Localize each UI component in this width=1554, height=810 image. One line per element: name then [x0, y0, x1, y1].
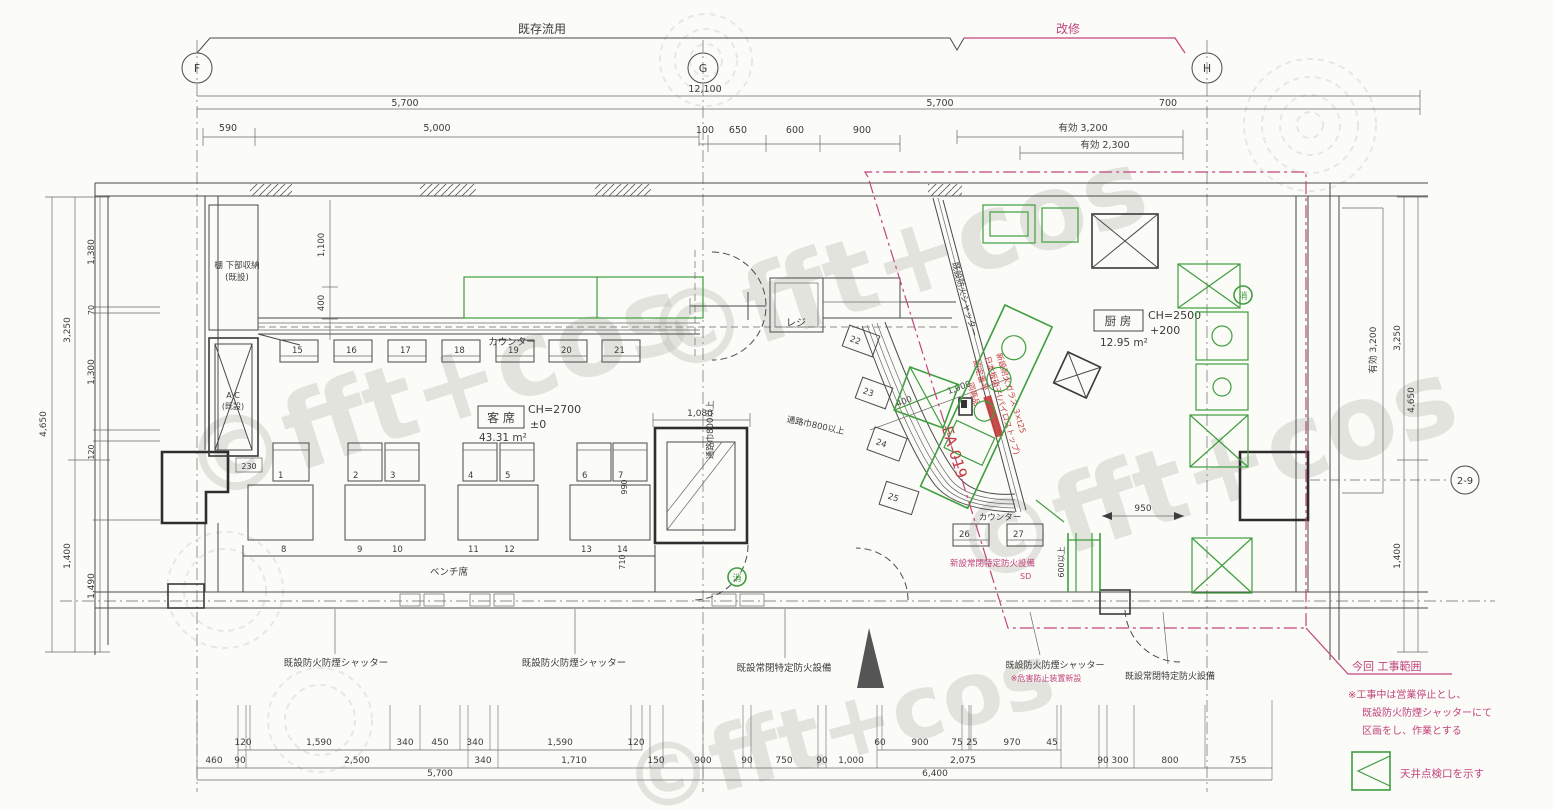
- stool-18: 18: [454, 346, 465, 356]
- dimb-m-0: 460: [205, 756, 222, 766]
- dim-950: 950: [1134, 504, 1151, 514]
- kitchen-name: 厨 房: [1105, 314, 1132, 328]
- dimb-ur-4: 970: [1003, 738, 1020, 748]
- seat-23: 23: [861, 386, 875, 399]
- ac-label-sub: (既設): [222, 401, 244, 411]
- scope-note-3: 区画をし、作業とする: [1362, 724, 1462, 737]
- dim-990: 990: [620, 479, 629, 494]
- dim-1100: 1,100: [317, 233, 327, 257]
- ac-label: A C: [226, 391, 240, 400]
- scope-title: 今回 工事範囲: [1352, 659, 1422, 673]
- watermark-layer: ©fft+cos ©fft+cos ©fft+cos ©fft+cos: [167, 14, 1471, 810]
- fire-extinguisher-mark-2: 消: [1238, 290, 1247, 302]
- aisle-width-note-2: 通路巾800以上: [786, 414, 846, 437]
- ceiling-access-legend: 天井点検口を示す: [1352, 752, 1484, 790]
- dimb-m-3: 340: [474, 756, 491, 766]
- shelf-label: 棚 下部収納: [214, 260, 259, 271]
- register-label: レジ: [786, 318, 806, 329]
- seat-27: 27: [1013, 530, 1024, 540]
- dimb-ul-4: 340: [466, 738, 483, 748]
- shutter-label-2: 既設防火防煙シャッター: [522, 657, 627, 669]
- dim-yuko-3200-right: 有効 3,200: [1367, 326, 1379, 373]
- dim-yuko-3200: 有効 3,200: [1058, 122, 1107, 134]
- dim-590: 590: [219, 123, 237, 134]
- dim-3250-left: 3,250: [63, 317, 73, 343]
- seating-level: ±0: [530, 418, 546, 431]
- seat-13: 13: [581, 545, 592, 555]
- dimb-ur-3: 25: [966, 738, 977, 748]
- dim-5700-gh: 5,700: [926, 98, 953, 109]
- seat-12: 12: [504, 545, 515, 555]
- stool-17: 17: [400, 346, 411, 356]
- dim-yuko-2300: 有効 2,300: [1080, 139, 1129, 151]
- dim-100: 100: [696, 125, 714, 136]
- existing-reuse-label: 既存流用: [518, 22, 566, 36]
- dim-230: 230: [241, 462, 256, 471]
- floor-plan-drawing: ©fft+cos ©fft+cos ©fft+cos ©fft+cos 既存流用…: [0, 0, 1554, 810]
- dim-650: 650: [729, 125, 747, 136]
- dimb-m-6: 900: [694, 756, 711, 766]
- dimb-ur-2: 75: [951, 738, 962, 748]
- dimb-m-11: 2,075: [950, 756, 976, 766]
- seat-25: 25: [886, 492, 899, 505]
- dimb-total-5700: 5,700: [427, 769, 453, 779]
- dim-4650-right: 4,650: [1407, 387, 1417, 413]
- dimb-total-6400: 6,400: [922, 769, 948, 779]
- watermark-text: ©fft+cos: [939, 334, 1471, 611]
- seat-8: 8: [281, 545, 286, 555]
- hazard-note: ※危害防止装置新設: [1011, 673, 1082, 683]
- dimb-m-9: 90: [816, 756, 828, 766]
- counter2-label: カウンター: [979, 513, 1022, 523]
- left-dimensions: 4,650 3,250 1,400 1,380 70 1,300 120 1,4…: [39, 197, 160, 652]
- dimb-m-12: 90: [1097, 756, 1109, 766]
- dim-1400-right: 1,400: [1393, 543, 1403, 569]
- section-marker: [857, 628, 884, 688]
- dimb-m-1: 90: [234, 756, 246, 766]
- firedoor-label-1: 既設常閉特定防火設備: [736, 662, 831, 674]
- stool-16: 16: [346, 346, 357, 356]
- renovation-label: 改修: [1056, 21, 1080, 36]
- dimb-ur-1: 900: [911, 738, 928, 748]
- dimb-m-14: 800: [1161, 756, 1178, 766]
- dim-900: 900: [853, 125, 871, 136]
- dim-12100: 12,100: [688, 84, 721, 95]
- bottom-annotations: 既設防火防煙シャッター 既設防火防煙シャッター 既設常閉特定防火設備 既設防火防…: [284, 609, 1215, 688]
- shelf-label-sub: (既設): [225, 272, 249, 283]
- seating-ch: CH=2700: [528, 403, 581, 416]
- top-brackets: 既存流用 改修: [197, 21, 1185, 53]
- chair-2: 2: [353, 471, 358, 481]
- chair-6: 6: [582, 471, 587, 481]
- grid-label-2-9: 2-9: [1457, 476, 1473, 487]
- chair-1: 1: [278, 471, 283, 481]
- dim-3250-right: 3,250: [1393, 325, 1403, 351]
- dimb-ul-6: 120: [627, 738, 644, 748]
- watermark-text: ©fft+cos: [613, 622, 1065, 810]
- entry-shaft: 1,080 消: [653, 409, 750, 600]
- dim-710: 710: [618, 554, 627, 569]
- shutter-label-3: 既設防火防煙シャッター: [1005, 659, 1104, 671]
- seat-10: 10: [392, 545, 403, 555]
- tables-row: 8 9 10 11 12 13 14: [248, 485, 650, 555]
- dimb-m-2: 2,500: [344, 756, 370, 766]
- dimb-m-4: 1,710: [561, 756, 587, 766]
- stool-15: 15: [292, 346, 303, 356]
- chair-4: 4: [468, 471, 473, 481]
- grid-label-f: F: [194, 62, 200, 75]
- dimb-m-8: 750: [775, 756, 792, 766]
- dimb-ul-2: 340: [396, 738, 413, 748]
- seat-26: 26: [959, 530, 970, 540]
- stool-21: 21: [614, 346, 625, 356]
- dimb-m-5: 150: [647, 756, 664, 766]
- dimb-m-7: 90: [741, 756, 753, 766]
- seat-24: 24: [874, 437, 888, 450]
- fire-glass-annotation: 新設耐火ガラス 3×t25 日本板硝子(パイロストップ) 認定番号 同等品 EA…: [938, 352, 1034, 481]
- bench-label: ベンチ席: [430, 566, 469, 578]
- kitchen-ch: CH=2500: [1148, 309, 1201, 322]
- new-firedoor-sd: SD: [1020, 572, 1031, 581]
- chair-3: 3: [390, 471, 395, 481]
- dimb-ul-3: 450: [431, 738, 448, 748]
- seat-22: 22: [848, 334, 862, 347]
- chair-5: 5: [505, 471, 510, 481]
- top-dimensions: 12,100 5,700 5,700 700 590 5,000 100 650…: [197, 84, 1420, 160]
- legend-text: 天井点検口を示す: [1400, 767, 1484, 780]
- dimb-m-10: 1,000: [838, 756, 864, 766]
- firedoor-label-2: 既設常閉特定防火設備: [1125, 670, 1215, 682]
- dimb-m-15: 755: [1229, 756, 1246, 766]
- dim-600over: 600以上: [1057, 546, 1066, 577]
- dim-5000: 5,000: [423, 123, 450, 134]
- dimb-ul-0: 120: [234, 738, 251, 748]
- scope-note-2: 既設防火防煙シャッターにて: [1362, 706, 1492, 719]
- grid-label-h: H: [1203, 62, 1211, 75]
- dim-1400-left: 1,400: [63, 543, 73, 569]
- kitchen-room-label: 厨 房 CH=2500 +200 12.95 m²: [1094, 309, 1201, 349]
- stool-20: 20: [561, 346, 572, 356]
- watermark-text: ©fft+cos: [629, 124, 1161, 401]
- aisle-width-note-1: 通路巾800以上: [705, 400, 716, 459]
- scope-note-1: ※工事中は営業停止とし、: [1348, 688, 1466, 701]
- fire-extinguisher-mark: 消: [732, 572, 741, 584]
- kitchen-level: +200: [1150, 324, 1180, 337]
- dim-4650-left: 4,650: [39, 411, 49, 437]
- dimb-ul-1: 1,590: [306, 738, 332, 748]
- seating-name: 客 席: [487, 410, 515, 425]
- seat-9: 9: [357, 545, 362, 555]
- dimb-ur-5: 45: [1046, 738, 1057, 748]
- kitchen-area: 12.95 m²: [1100, 337, 1148, 349]
- dim-5700-fg: 5,700: [391, 98, 418, 109]
- seat-14: 14: [617, 545, 628, 555]
- seating-area: 43.31 m²: [479, 432, 527, 444]
- shutter-label-1: 既設防火防煙シャッター: [284, 657, 389, 669]
- seat-11: 11: [468, 545, 479, 555]
- shelf-unit: 棚 下部収納 (既設): [209, 205, 260, 330]
- dim-400: 400: [317, 295, 327, 311]
- dim-600: 600: [786, 125, 804, 136]
- new-firedoor-label: 新設常閉特定防火設備: [950, 558, 1036, 569]
- dimb-ul-5: 1,590: [547, 738, 573, 748]
- stool-19: 19: [508, 346, 519, 356]
- dim-700: 700: [1159, 98, 1177, 109]
- dimb-ur-0: 60: [874, 738, 886, 748]
- dimb-m-13: 300: [1111, 756, 1128, 766]
- grid-label-g: G: [699, 62, 708, 75]
